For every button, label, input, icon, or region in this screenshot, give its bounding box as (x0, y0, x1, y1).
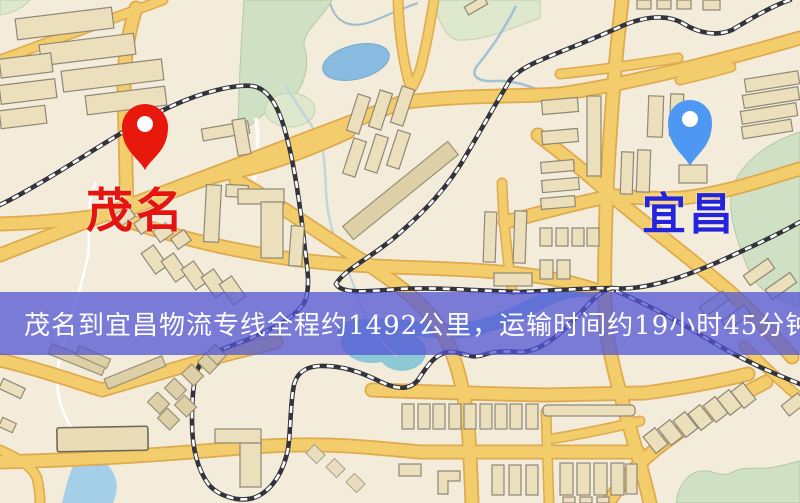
map-canvas (0, 0, 800, 503)
destination-label: 宜昌 (642, 178, 736, 242)
route-info-banner: 茂名到宜昌物流专线全程约1492公里，运输时间约19小时45分钟. (0, 292, 800, 355)
map-screenshot: 茂名到宜昌物流专线全程约1492公里，运输时间约19小时45分钟. 茂名 宜昌 (0, 0, 800, 503)
route-info-text: 茂名到宜昌物流专线全程约1492公里，运输时间约19小时45分钟. (24, 305, 800, 342)
origin-label: 茂名 (86, 172, 186, 241)
